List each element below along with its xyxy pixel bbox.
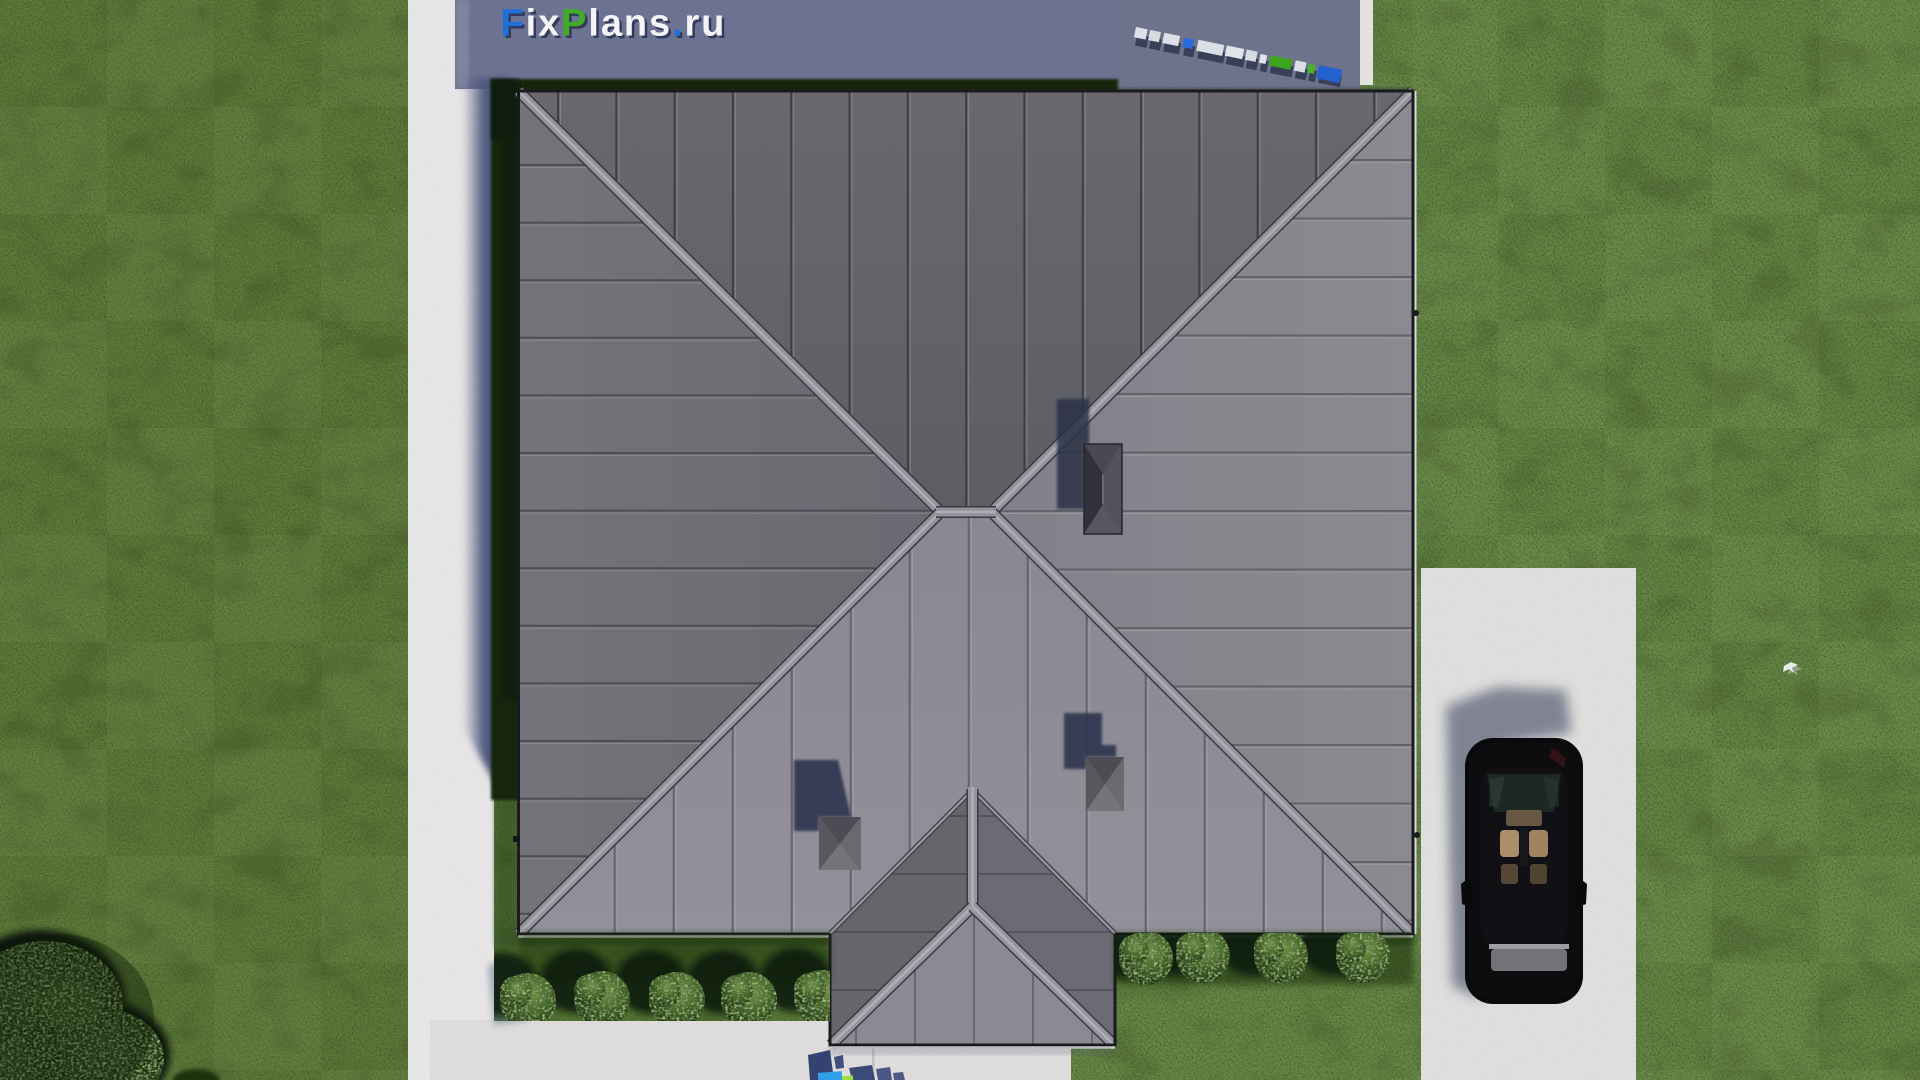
svg-text:FixPlans.ru: FixPlans.ru [501,3,727,45]
